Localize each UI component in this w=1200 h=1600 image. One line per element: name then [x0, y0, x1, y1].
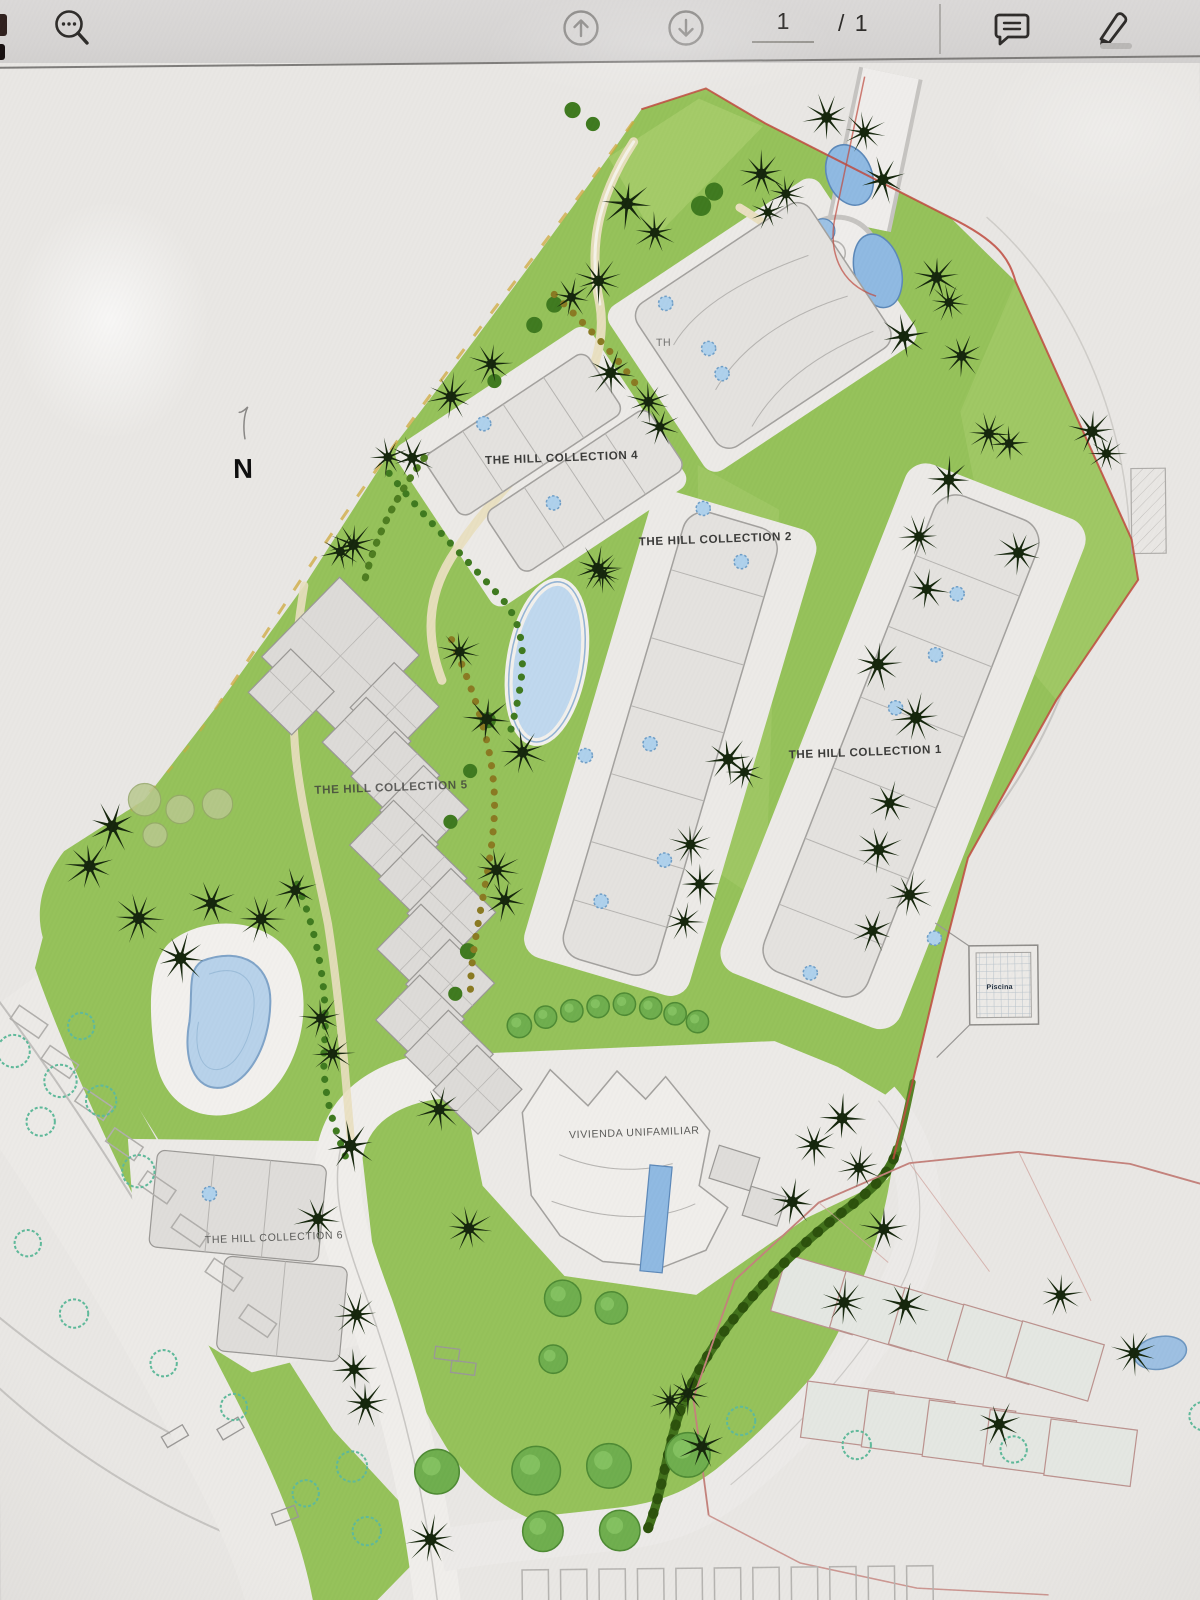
page-down-button[interactable] [663, 0, 709, 56]
markup-button[interactable] [1082, 0, 1134, 56]
bezel-mark [0, 14, 7, 36]
bush-icon [166, 795, 195, 824]
search-button[interactable] [48, 0, 96, 56]
bush-icon [202, 789, 233, 820]
north-letter: N [233, 453, 253, 484]
document-viewport[interactable]: THE HILL COLLECTION 4 THE HILL COLLECTIO… [0, 0, 1200, 1600]
search-icon [49, 5, 95, 51]
page-up-icon [559, 6, 603, 50]
label-collection-3-partial: TH [656, 337, 671, 349]
comment-button[interactable] [988, 0, 1036, 56]
bezel-mark [0, 44, 5, 60]
legend-block [1131, 468, 1166, 553]
bush-icon [128, 783, 161, 816]
page-total-label: / 1 [838, 10, 870, 37]
page-number-input[interactable]: 1 [752, 8, 814, 43]
bush-icon [143, 823, 168, 848]
page-down-icon [664, 6, 708, 50]
site-plan-map[interactable]: THE HILL COLLECTION 4 THE HILL COLLECTIO… [0, 0, 1200, 1600]
pdf-toolbar: 1 / 1 [0, 0, 1200, 63]
screen-photo: THE HILL COLLECTION 4 THE HILL COLLECTIO… [0, 0, 1200, 1600]
terrace-unit [1044, 1419, 1138, 1486]
comment-icon [990, 6, 1034, 50]
markup-icon [1083, 5, 1133, 51]
label-pool-area: Piscina [987, 983, 1013, 991]
page-up-button[interactable] [558, 0, 604, 56]
toolbar-divider [939, 4, 941, 54]
